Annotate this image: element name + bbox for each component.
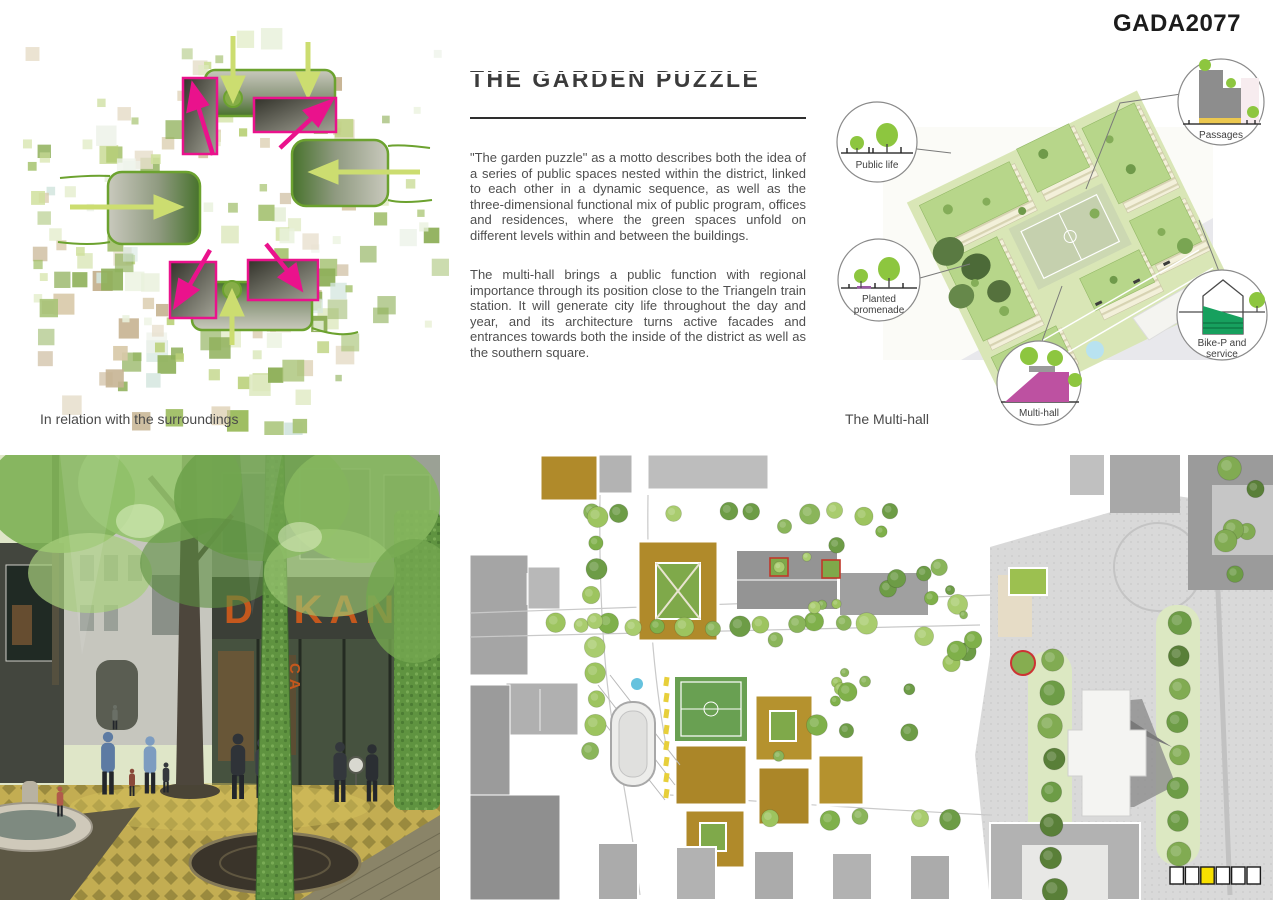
project-code: GADA2077 — [1113, 10, 1241, 38]
axon-caption: The Multi-hall — [845, 411, 929, 427]
page-indicator-cell — [1170, 867, 1183, 884]
svg-text:Passages: Passages — [1199, 130, 1243, 141]
paragraph-1: "The garden puzzle" as a motto describes… — [470, 150, 806, 243]
relation-caption: In relation with the surroundings — [40, 411, 238, 427]
page-indicator-cell — [1216, 867, 1229, 884]
paragraph-2: The multi-hall brings a public function … — [470, 267, 806, 360]
svg-text:promenade: promenade — [854, 305, 905, 316]
callout-multi-hall: Multi-hall — [997, 341, 1082, 425]
sports-court — [675, 677, 747, 741]
svg-text:Planted: Planted — [862, 294, 896, 305]
article-title: THE GARDEN PUZZLE — [470, 66, 806, 93]
svg-text:Public life: Public life — [856, 160, 899, 171]
street-render: DEKANEN CA — [0, 455, 440, 900]
article: THE GARDEN PUZZLE "The garden puzzle" as… — [470, 66, 806, 360]
callout-public-life: Public life — [837, 102, 917, 182]
page-indicator-cell — [1201, 867, 1214, 884]
page-indicator-cell — [1232, 867, 1245, 884]
callout-bike-p: Bike-P and service — [1177, 270, 1267, 360]
title-rule — [470, 117, 806, 119]
callout-passages: Passages — [1178, 59, 1264, 145]
green-gate-shapes — [58, 70, 432, 334]
svg-text:Bike-P and: Bike-P and — [1198, 338, 1247, 349]
callout-planted-promenade: Planted promenade — [838, 239, 920, 321]
site-plan — [470, 455, 1273, 900]
page-indicator-cell — [1185, 867, 1198, 884]
svg-text:service: service — [1206, 349, 1238, 360]
page-indicator-cell — [1247, 867, 1260, 884]
presentation-board: GADA2077 — [0, 0, 1273, 900]
svg-text:Multi-hall: Multi-hall — [1019, 408, 1059, 419]
relation-diagram — [0, 0, 460, 435]
axonometric-panel: Public life Planted promenade Multi-hall — [833, 50, 1273, 440]
